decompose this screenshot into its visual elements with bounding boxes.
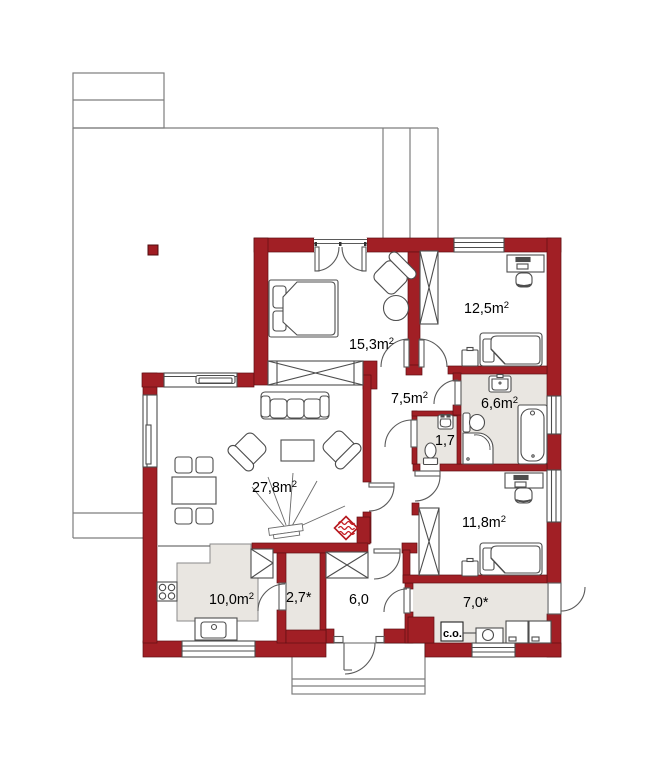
svg-text:11,8m2: 11,8m2 [462,514,506,531]
svg-text:2,7*: 2,7* [286,590,312,606]
svg-text:15,3m2: 15,3m2 [349,336,394,353]
svg-text:10,0m2: 10,0m2 [209,591,254,608]
svg-text:6,6m2: 6,6m2 [481,395,518,412]
svg-text:1,7: 1,7 [435,433,455,449]
svg-text:7,5m2: 7,5m2 [391,390,428,407]
svg-text:c.o.: c.o. [443,628,462,640]
svg-text:27,8m2: 27,8m2 [252,479,297,496]
svg-text:12,5m2: 12,5m2 [464,300,509,317]
svg-text:6,0: 6,0 [349,592,369,608]
svg-text:7,0*: 7,0* [463,595,489,611]
